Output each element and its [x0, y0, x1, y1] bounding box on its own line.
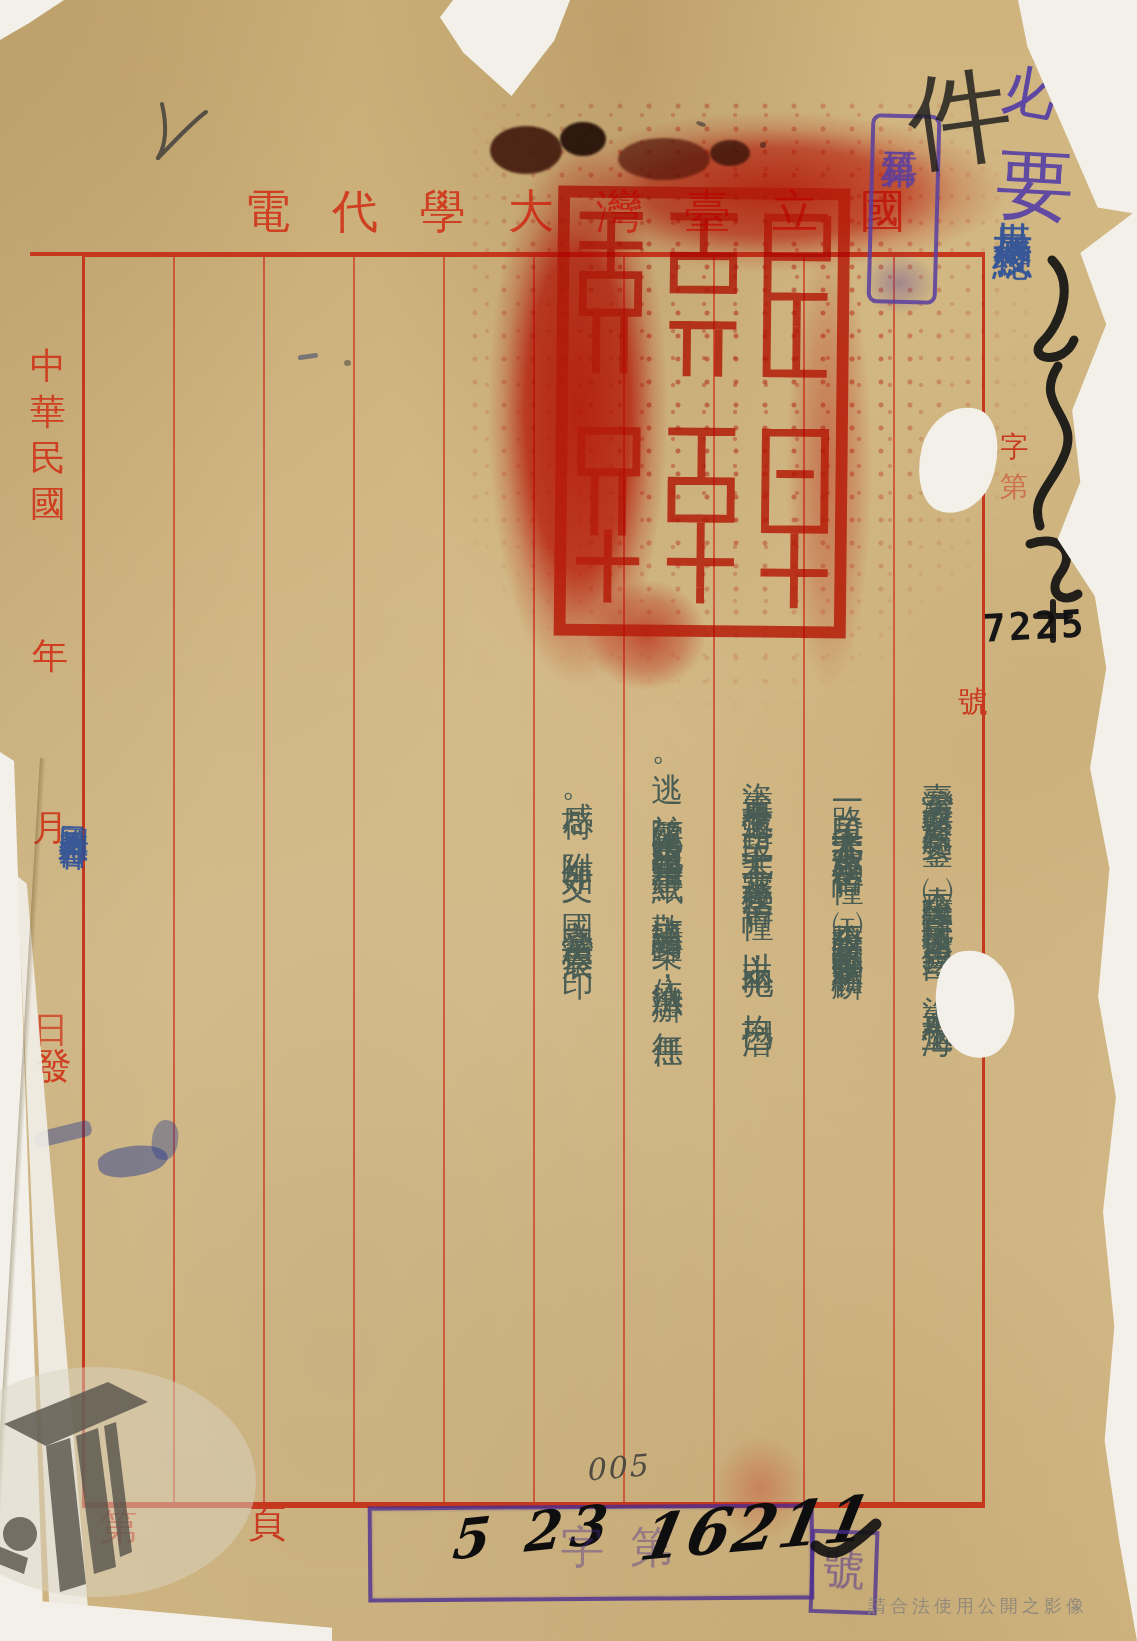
printed-year-label: 年 — [27, 638, 73, 674]
printed-day-label: 日 — [28, 1012, 74, 1048]
routing-annotation-black: 件 — [899, 43, 1021, 196]
ink-speck — [344, 360, 351, 366]
form-header-char: 代 — [330, 188, 380, 234]
stamp-smudge — [862, 252, 936, 314]
printed-era-char: 華 — [25, 394, 71, 430]
date-stamp: 民國卅八年五月廿日 — [32, 801, 91, 821]
signature-scribble — [1002, 244, 1122, 664]
black-check-mark — [810, 1518, 884, 1568]
pencil-page-number: 005 — [584, 1447, 650, 1487]
archive-watermark-logo — [0, 1362, 256, 1602]
form-column-line — [173, 257, 175, 1502]
usage-notice-watermark: 請合法使用公開之影像 — [868, 1594, 1088, 1618]
printed-era-char: 中 — [25, 348, 71, 384]
form-column-line — [353, 257, 355, 1502]
form-border-extension — [30, 252, 86, 256]
scanned-document: 國 立 臺 灣 大 學 代 電 中 華 民 國 年 月 日 發 字 第 號 第 … — [0, 0, 1137, 1641]
printed-era-char: 民 — [25, 440, 71, 476]
printed-era-char: 國 — [25, 486, 71, 522]
ink-stain — [560, 122, 606, 156]
seal-ink-spray — [468, 100, 1043, 715]
form-header-char: 學 — [418, 188, 468, 234]
form-column-line — [263, 257, 265, 1502]
ink-stain — [710, 140, 750, 166]
ink-stain — [490, 126, 562, 174]
printed-issue-label: 發 — [31, 1048, 77, 1084]
form-header-char: 電 — [242, 188, 292, 234]
pencil-check-mark — [146, 96, 218, 168]
receive-registry-stamp: 卅辰哿校總 — [986, 190, 1034, 216]
form-column-line — [443, 257, 445, 1502]
ink-stain — [618, 138, 710, 180]
university-seal — [468, 100, 1043, 715]
